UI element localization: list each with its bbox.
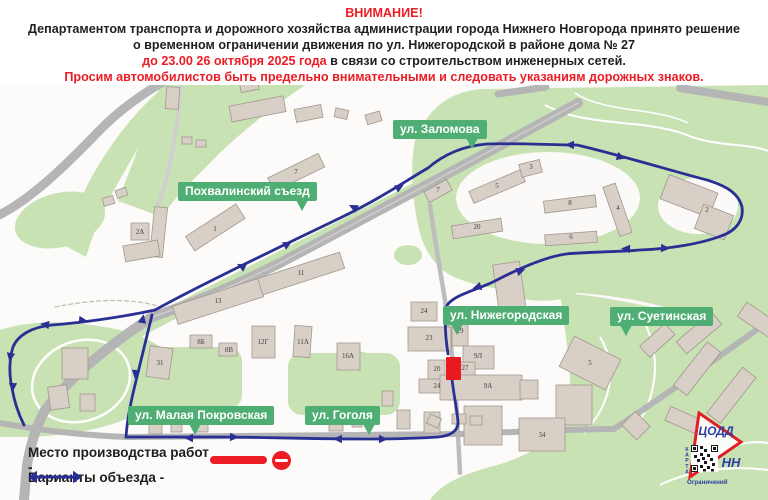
restriction-period: до 23.00 26 октября 2025 года xyxy=(142,54,327,68)
building-number: 1 xyxy=(213,225,217,233)
building-number: 16А xyxy=(342,352,354,360)
building-number: 6 xyxy=(569,233,573,241)
label-pointer xyxy=(189,424,201,435)
legend-detour: Варианты объезда - xyxy=(28,470,210,485)
street-label-malaya-pokrovskaya: ул. Малая Покровская xyxy=(128,406,274,425)
map-canvas: 2А 1 7 5 7 3 8 4 20 6 2 13 11 24 23 29 9… xyxy=(0,85,768,500)
building-number: 27 xyxy=(462,364,470,372)
building-number: 8В xyxy=(225,346,234,354)
closed-segment-icon xyxy=(210,456,267,464)
building-number: 4 xyxy=(616,204,620,212)
codd-org-label: ЦОДД xyxy=(698,424,734,438)
label-pointer xyxy=(451,324,463,335)
building-number: 2 xyxy=(705,206,709,214)
label-pointer xyxy=(296,200,308,211)
building-number: 9Л xyxy=(474,352,483,360)
work-site-marker xyxy=(446,357,461,380)
qr-code xyxy=(691,445,718,472)
notice-line3: до 23.00 26 октября 2025 года в связи со… xyxy=(0,53,768,69)
label-pointer xyxy=(363,424,375,435)
building-number: 24 xyxy=(434,382,442,390)
street-label-zalomova: ул. Заломова xyxy=(393,120,487,139)
notice-header: ВНИМАНИЕ! Департаментом транспорта и дор… xyxy=(0,5,768,85)
building-number: 11 xyxy=(298,269,305,277)
building-number: 12Г xyxy=(257,338,268,346)
building-number: 8 xyxy=(568,199,572,207)
notice-line4: Просим автомобилистов быть предельно вни… xyxy=(0,69,768,85)
codd-bottom-label: Ограничений xyxy=(687,479,728,486)
codd-city-label: НН xyxy=(722,455,741,470)
building-number: 2А xyxy=(136,228,145,236)
notice-title: ВНИМАНИЕ! xyxy=(0,5,768,21)
building-number: 11А xyxy=(297,338,309,346)
building-number: 31 xyxy=(157,359,165,367)
building-number: 5 xyxy=(588,359,592,367)
building-number: 5 xyxy=(495,182,499,190)
street-label-nizhegorodskaya: ул. Нижегородская xyxy=(443,306,569,325)
building-number: 3 xyxy=(529,163,533,171)
building-number: 24 xyxy=(421,307,429,315)
building-number: 20 xyxy=(434,365,442,373)
label-pointer xyxy=(466,138,478,149)
building-number: 20 xyxy=(474,223,482,231)
restriction-reason: в связи со строительством инженерных сет… xyxy=(327,54,626,68)
building-number: 13 xyxy=(215,297,223,305)
building-number: 34 xyxy=(539,431,547,439)
building-number: 23 xyxy=(426,334,434,342)
street-label-pokhvalinsky: Похвалинский съезд xyxy=(178,182,317,201)
notice-line2: о временном ограничении движения по ул. … xyxy=(0,37,768,53)
detour-arrow-icon xyxy=(28,470,82,484)
building-number: 9А xyxy=(484,382,493,390)
notice-line1: Департаментом транспорта и дорожного хоз… xyxy=(0,21,768,37)
building-number: 8Б xyxy=(197,338,205,346)
city-map: 2А 1 7 5 7 3 8 4 20 6 2 13 11 24 23 29 9… xyxy=(0,85,768,500)
no-entry-icon xyxy=(272,451,291,470)
street-label-suetinskaya: ул. Суетинская xyxy=(610,307,713,326)
building-number: 7 xyxy=(436,186,440,194)
label-pointer xyxy=(620,325,632,336)
traffic-notice-poster: { "header": { "title": "ВНИМАНИЕ!", "lin… xyxy=(0,0,768,500)
building-number: 7 xyxy=(294,168,298,176)
street-label-gogolya: ул. Гоголя xyxy=(305,406,380,425)
